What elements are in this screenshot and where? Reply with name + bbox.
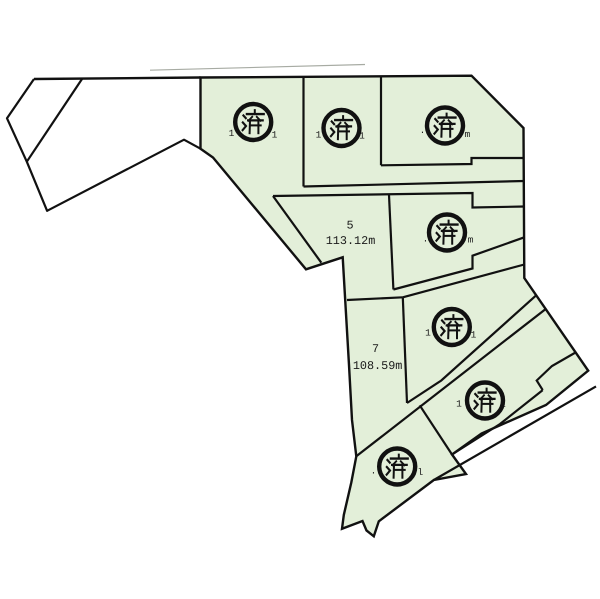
svg-text:1: 1 [456,399,462,410]
svg-text:108.59m: 108.59m [353,359,403,373]
svg-text:1: 1 [316,130,322,141]
svg-text:5: 5 [346,219,353,233]
svg-text:113.12m: 113.12m [326,234,376,248]
svg-text:.: . [371,466,377,477]
svg-text:.: . [420,125,426,136]
svg-text:1: 1 [272,130,278,141]
svg-text:1: 1 [425,328,431,339]
svg-text:m: m [468,235,474,246]
svg-text:m: m [464,129,470,140]
svg-text:7: 7 [372,342,379,356]
svg-text:1: 1 [229,128,235,139]
